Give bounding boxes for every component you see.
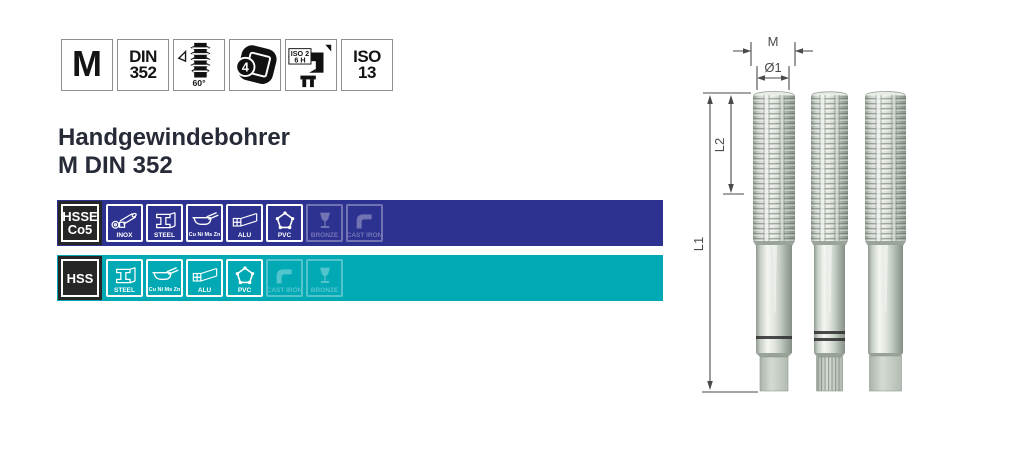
grade-line1: HSS: [67, 272, 94, 285]
badge-metric-thread: M: [61, 39, 113, 91]
product-title-line2: M DIN 352: [58, 152, 290, 180]
material-label: Cu Ni Ms Zn: [189, 232, 221, 239]
badge-square-drive: 4: [229, 39, 281, 91]
thread-gauge-icon: ISO 2 6 H: [286, 40, 336, 90]
product-title: Handgewindebohrer M DIN 352: [58, 124, 290, 180]
dim-label-l2: L2: [712, 138, 727, 152]
din-line2: 352: [130, 65, 157, 81]
pvc-pentagon-icon: [270, 210, 300, 232]
material-label: Cu Ni Ms Zn: [149, 287, 181, 294]
badge-din-352: DIN 352: [117, 39, 169, 91]
material-tile-pvc: PVC: [226, 259, 263, 297]
material-tile-alu: ALU: [226, 204, 263, 242]
material-tile-inox: INOX: [106, 204, 143, 242]
square-drive-label: 4: [242, 60, 249, 74]
material-tiles: STEEL Cu Ni Ms Zn: [106, 259, 343, 297]
dim-label-d1: Ø1: [764, 60, 781, 75]
material-tiles: INOX STEEL: [106, 204, 383, 242]
spec-badge-row: M DIN 352 60°: [61, 39, 393, 91]
material-tile-steel: STEEL: [146, 204, 183, 242]
material-tile-bronze: BRONZE: [306, 204, 343, 242]
badge-flank-angle: 60°: [173, 39, 225, 91]
cast-iron-elbow-icon: [270, 265, 300, 287]
material-tile-cast-iron: CAST IRON: [346, 204, 383, 242]
steel-beam-icon: [110, 265, 140, 287]
material-label: BRONZE: [311, 232, 338, 239]
bronze-goblet-icon: [310, 210, 340, 232]
square-drive-icon: 4: [230, 40, 280, 90]
material-label: BRONZE: [311, 287, 338, 294]
material-bar-hss: HSS STEEL: [57, 255, 663, 301]
alu-profile-icon: [230, 210, 260, 232]
material-label: PVC: [238, 287, 251, 294]
alu-profile-icon: [190, 265, 220, 287]
material-tile-alu: ALU: [186, 259, 223, 297]
cast-iron-elbow-icon: [350, 210, 380, 232]
material-tile-bronze: BRONZE: [306, 259, 343, 297]
grade-badge-hss: HSS: [58, 256, 102, 300]
tap-1: [753, 92, 795, 392]
thread-profile-icon: 60°: [174, 40, 224, 90]
flank-angle-label: 60°: [192, 78, 206, 88]
material-tile-pvc: PVC: [266, 204, 303, 242]
material-label: PVC: [278, 232, 291, 239]
grade-line2: Co5: [68, 223, 93, 236]
material-tile-cast-iron: CAST IRON: [266, 259, 303, 297]
nonferrous-basin-icon: [190, 210, 220, 232]
badge-iso2-tolerance: ISO 2 6 H: [285, 39, 337, 91]
iso13-line2: 13: [358, 65, 376, 81]
nonferrous-basin-icon: [150, 265, 180, 287]
material-label: ALU: [238, 232, 251, 239]
dim-label-l1: L1: [691, 237, 706, 251]
dim-label-m: M: [768, 34, 779, 49]
inox-tubes-icon: [110, 210, 140, 232]
pvc-pentagon-icon: [230, 265, 260, 287]
bronze-goblet-icon: [310, 265, 340, 287]
material-label: CAST IRON: [347, 232, 383, 239]
material-label: STEEL: [154, 232, 175, 239]
product-title-line1: Handgewindebohrer: [58, 124, 290, 152]
grade-badge-hsse-co5: HSSE Co5: [58, 201, 102, 245]
material-tile-steel: STEEL: [106, 259, 143, 297]
dimension-diagram: M Ø1 L2 L1: [688, 18, 988, 413]
steel-beam-icon: [150, 210, 180, 232]
tap-3: [865, 92, 906, 392]
material-label: INOX: [117, 232, 133, 239]
material-tile-nonferrous: Cu Ni Ms Zn: [146, 259, 183, 297]
badge-iso-13: ISO 13: [341, 39, 393, 91]
material-tile-nonferrous: Cu Ni Ms Zn: [186, 204, 223, 242]
material-label: CAST IRON: [267, 287, 303, 294]
tap-2: [811, 92, 848, 391]
material-bar-hsse: HSSE Co5 INOX: [57, 200, 663, 246]
metric-thread-label: M: [72, 43, 102, 85]
material-label: ALU: [198, 287, 211, 294]
tolerance-6h-label: 6 H: [294, 56, 305, 65]
material-label: STEEL: [114, 287, 135, 294]
tap-drawing: M Ø1 L2 L1: [688, 18, 988, 408]
